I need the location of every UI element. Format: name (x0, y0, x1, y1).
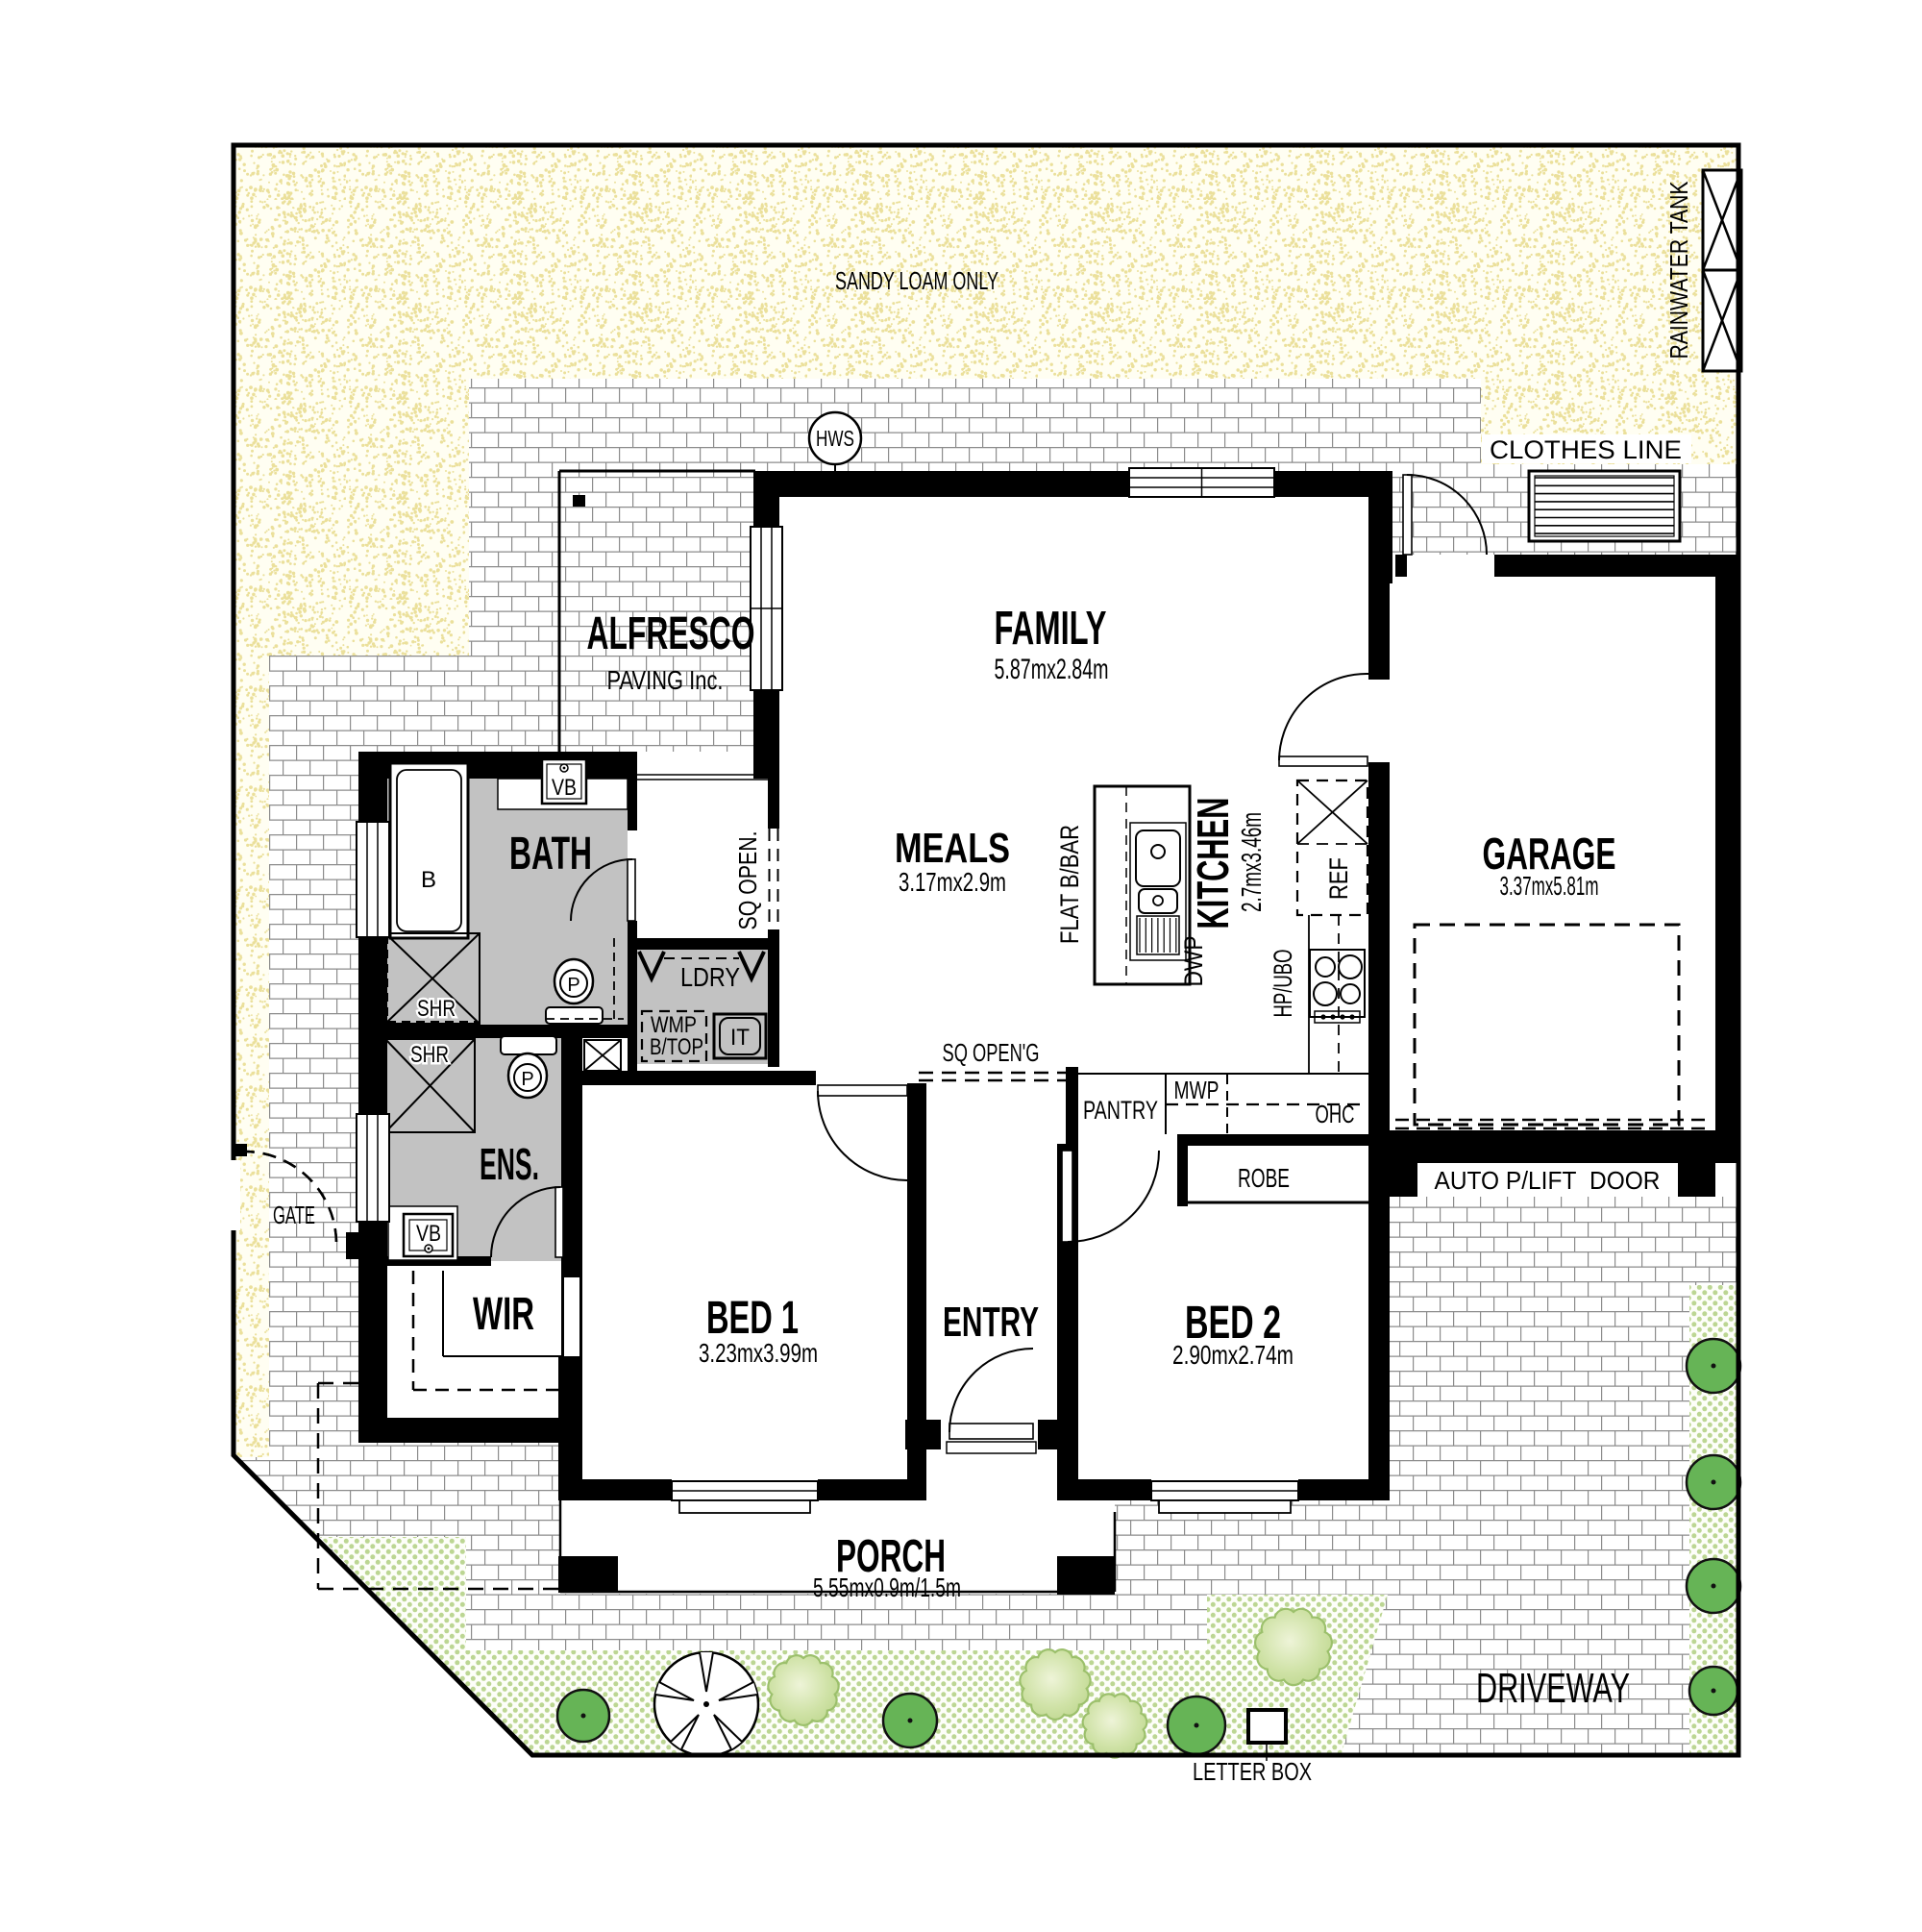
svg-text:GATE: GATE (273, 1201, 315, 1229)
svg-text:FLAT B/BAR: FLAT B/BAR (1055, 825, 1084, 944)
svg-text:3.37mx5.81m: 3.37mx5.81m (1500, 871, 1599, 901)
svg-text:VB: VB (416, 1221, 441, 1247)
svg-text:2.7mx3.46m: 2.7mx3.46m (1237, 812, 1268, 912)
svg-text:B/TOP: B/TOP (650, 1034, 703, 1060)
svg-text:PANTRY: PANTRY (1083, 1096, 1158, 1125)
svg-text:OHC: OHC (1316, 1100, 1355, 1128)
svg-text:LDRY: LDRY (680, 962, 740, 992)
svg-text:3.17mx2.9m: 3.17mx2.9m (899, 867, 1006, 897)
svg-text:SANDY LOAM ONLY: SANDY LOAM ONLY (835, 266, 998, 295)
svg-text:HP/UBO: HP/UBO (1269, 950, 1297, 1018)
svg-text:BED 1: BED 1 (706, 1293, 799, 1344)
svg-text:SQ OPEN.: SQ OPEN. (733, 831, 762, 930)
svg-text:MWP: MWP (1174, 1076, 1220, 1104)
svg-text:WIR: WIR (473, 1289, 534, 1340)
svg-text:3.23mx3.99m: 3.23mx3.99m (699, 1338, 818, 1368)
svg-text:PAVING Inc.: PAVING Inc. (607, 665, 724, 695)
svg-text:HWS: HWS (816, 426, 854, 451)
svg-text:IT: IT (730, 1025, 750, 1051)
svg-text:P: P (567, 975, 579, 996)
svg-text:VB: VB (552, 775, 577, 801)
svg-text:SHR: SHR (410, 1042, 449, 1068)
svg-text:SQ OPEN'G: SQ OPEN'G (943, 1038, 1040, 1067)
svg-text:REF: REF (1324, 857, 1353, 900)
svg-text:LETTER BOX: LETTER BOX (1193, 1757, 1312, 1786)
svg-text:5.87mx2.84m: 5.87mx2.84m (995, 654, 1109, 685)
svg-text:KITCHEN: KITCHEN (1188, 798, 1238, 929)
svg-text:B: B (421, 867, 436, 893)
svg-text:5.55mx0.9m/1.5m: 5.55mx0.9m/1.5m (813, 1573, 961, 1602)
svg-text:SHR: SHR (417, 996, 456, 1022)
svg-text:ALFRESCO: ALFRESCO (587, 608, 755, 659)
svg-text:RAINWATER TANK: RAINWATER TANK (1664, 181, 1693, 359)
svg-text:BATH: BATH (509, 829, 592, 879)
svg-text:ENS.: ENS. (480, 1139, 539, 1189)
svg-text:AUTO P/LIFT DOOR: AUTO P/LIFT DOOR (1435, 1166, 1661, 1195)
svg-text:ENTRY: ENTRY (943, 1299, 1039, 1346)
svg-text:2.90mx2.74m: 2.90mx2.74m (1172, 1340, 1294, 1370)
svg-text:DWP: DWP (1179, 936, 1208, 987)
svg-text:FAMILY: FAMILY (995, 603, 1107, 655)
svg-text:P: P (521, 1069, 533, 1090)
svg-text:CLOTHES LINE: CLOTHES LINE (1490, 435, 1682, 464)
svg-text:MEALS: MEALS (895, 825, 1010, 872)
svg-text:ROBE: ROBE (1238, 1163, 1290, 1193)
svg-text:DRIVEWAY: DRIVEWAY (1476, 1665, 1630, 1712)
